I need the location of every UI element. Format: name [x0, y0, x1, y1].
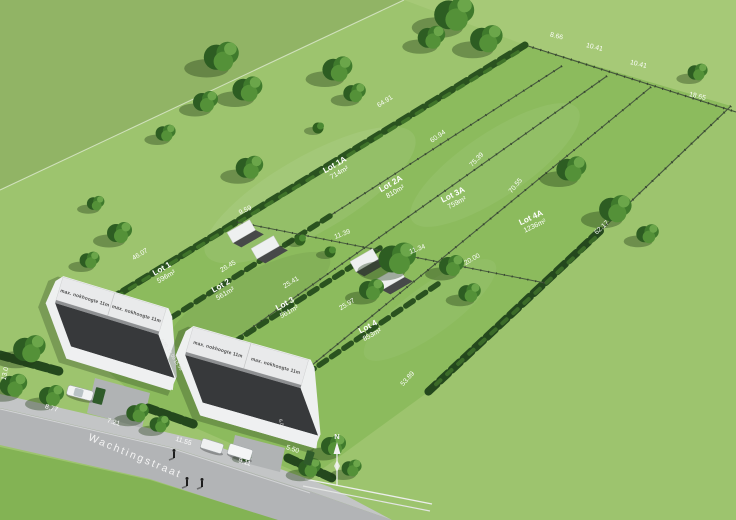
site-plan-render: max. nokhoogte 11m max. nokhoogte 11m ma… [0, 0, 736, 520]
site-plan-svg: max. nokhoogte 11m max. nokhoogte 11m ma… [0, 0, 736, 520]
north-label: N [334, 432, 339, 441]
